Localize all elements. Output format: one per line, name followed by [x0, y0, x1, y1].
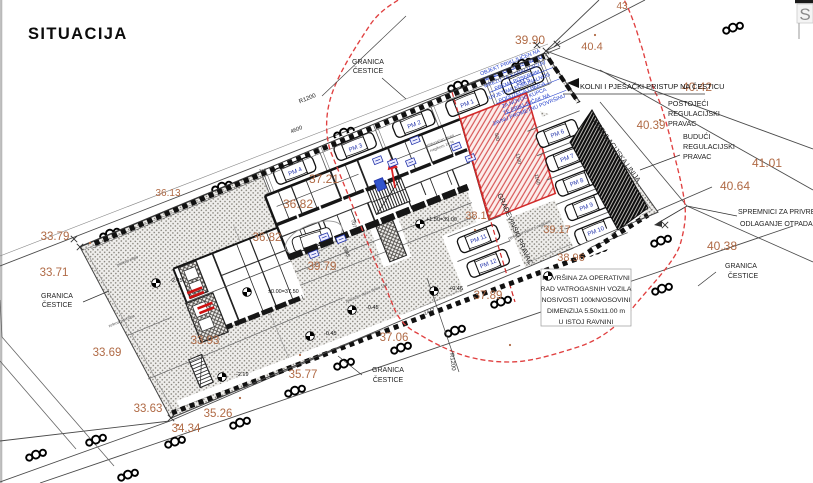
svg-text:BUDUĆI: BUDUĆI: [683, 132, 711, 141]
svg-text:RAD VATROGASNIH VOZILA: RAD VATROGASNIH VOZILA: [541, 286, 632, 293]
svg-text:-0.45: -0.45: [324, 331, 337, 337]
svg-text:U ISTOJ RAVNINI: U ISTOJ RAVNINI: [559, 319, 614, 326]
svg-text:±0.00=37.50: ±0.00=37.50: [268, 289, 299, 295]
svg-text:SPREMNICI ZA PRIVREMEN: SPREMNICI ZA PRIVREMEN: [738, 209, 813, 216]
svg-text:40.39: 40.39: [637, 120, 666, 132]
svg-text:+0.46: +0.46: [449, 286, 463, 292]
svg-text:PRAVAC: PRAVAC: [668, 119, 697, 128]
svg-text:38.17: 38.17: [465, 210, 493, 222]
svg-text:SITUACIJA: SITUACIJA: [28, 25, 128, 43]
svg-text:S: S: [799, 5, 810, 24]
svg-text:-2.45: -2.45: [170, 278, 183, 284]
svg-text:37.89: 37.89: [474, 290, 503, 302]
svg-text:39.79: 39.79: [308, 261, 337, 273]
svg-text:POVRŠINA ZA OPERATIVNI: POVRŠINA ZA OPERATIVNI: [542, 273, 630, 282]
svg-text:38.96: 38.96: [557, 252, 585, 264]
svg-text:37.06: 37.06: [380, 332, 409, 344]
svg-text:DIMENZIJA 5.50x11.00 m: DIMENZIJA 5.50x11.00 m: [547, 308, 625, 315]
svg-text:33.93: 33.93: [191, 335, 220, 347]
svg-text:36.82: 36.82: [283, 197, 313, 211]
svg-text:PRAVAC: PRAVAC: [683, 152, 712, 161]
svg-text:ODLAGANJE OTPADA: ODLAGANJE OTPADA: [740, 221, 813, 228]
svg-text:ČESTICE: ČESTICE: [728, 271, 759, 280]
svg-text:REGULACIJSKI: REGULACIJSKI: [668, 109, 720, 118]
svg-text:REGULACIJSKI: REGULACIJSKI: [683, 142, 735, 151]
svg-text:ČESTICE: ČESTICE: [42, 300, 73, 309]
svg-text:GRANICA: GRANICA: [41, 293, 73, 300]
svg-text:43: 43: [616, 1, 628, 12]
svg-text:34.34: 34.34: [172, 423, 201, 435]
svg-text:NOSIVOSTI 100kN/OSOVINI: NOSIVOSTI 100kN/OSOVINI: [542, 297, 631, 304]
svg-text:KOLNI I PJEŠAČKI PRISTUP NA ČE: KOLNI I PJEŠAČKI PRISTUP NA ČESTICU: [580, 82, 724, 91]
svg-text:-0.45: -0.45: [366, 305, 379, 311]
svg-text:35.26: 35.26: [204, 408, 233, 420]
svg-text:33.71: 33.71: [40, 267, 69, 279]
svg-text:-2.19: -2.19: [236, 372, 249, 378]
svg-text:36.82: 36.82: [253, 232, 282, 244]
svg-text:33.79: 33.79: [41, 231, 70, 243]
svg-text:40.38: 40.38: [707, 239, 737, 253]
svg-text:40.4: 40.4: [581, 41, 602, 53]
svg-text:35.77: 35.77: [289, 369, 318, 381]
svg-text:39.90: 39.90: [515, 33, 545, 47]
svg-text:POSTOJEĆI: POSTOJEĆI: [668, 99, 709, 108]
svg-text:+1.50=39.00: +1.50=39.00: [426, 217, 457, 223]
svg-text:36.13: 36.13: [155, 188, 180, 199]
svg-text:39.17: 39.17: [543, 224, 571, 236]
svg-text:33.63: 33.63: [134, 403, 163, 415]
svg-text:33.69: 33.69: [93, 347, 122, 359]
svg-text:40.64: 40.64: [720, 179, 750, 193]
svg-text:37.21: 37.21: [309, 172, 339, 186]
svg-text:GRANICA: GRANICA: [372, 367, 404, 374]
svg-text:ČESTICE: ČESTICE: [373, 375, 404, 384]
svg-text:GRANICA: GRANICA: [725, 263, 757, 270]
svg-text:41.01: 41.01: [752, 156, 782, 170]
svg-text:ČESTICE: ČESTICE: [353, 66, 384, 75]
